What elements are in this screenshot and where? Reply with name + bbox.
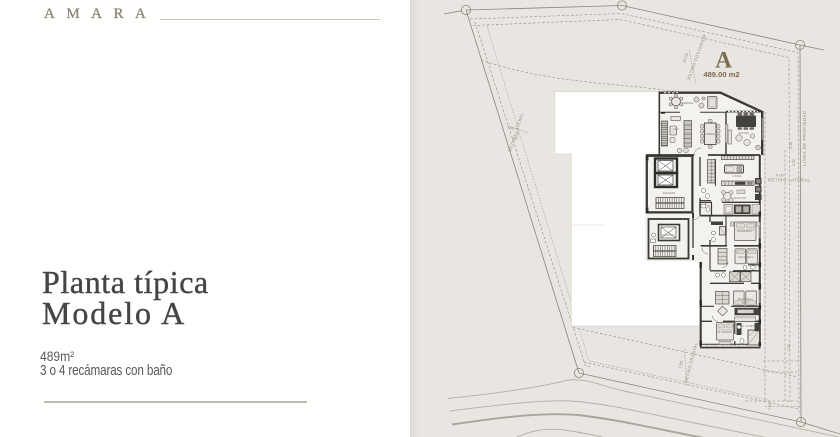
svg-text:ESTUDIO: ESTUDIO: [739, 133, 749, 135]
svg-text:2.50: 2.50: [792, 159, 796, 166]
svg-text:COCINA: COCINA: [733, 175, 742, 178]
svg-text:LINEA DE PROPIEDAD: LINEA DE PROPIEDAD: [802, 111, 807, 166]
svg-text:VESTIBULO: VESTIBULO: [662, 235, 675, 237]
svg-text:RECAMARA 3: RECAMARA 3: [738, 298, 754, 301]
svg-text:ALC. MASTER: ALC. MASTER: [716, 331, 732, 334]
svg-text:DESAYUNO: DESAYUNO: [734, 197, 747, 200]
svg-text:W. CLOSET: W. CLOSET: [742, 326, 755, 328]
svg-text:COMEDOR: COMEDOR: [704, 134, 716, 136]
svg-text:2.50: 2.50: [787, 344, 791, 351]
svg-text:RECAMARA 2: RECAMARA 2: [739, 256, 755, 259]
svg-text:SALA: SALA: [673, 128, 679, 131]
svg-text:ESCALERA: ESCALERA: [663, 192, 676, 195]
svg-text:A: A: [715, 48, 732, 73]
svg-text:489.00 m2: 489.00 m2: [703, 70, 739, 79]
svg-text:4.00: 4.00: [776, 173, 785, 178]
svg-text:TERRAZA: TERRAZA: [683, 102, 694, 105]
svg-text:RETIRO LATERAL: RETIRO LATERAL: [768, 178, 810, 183]
svg-text:RECAMARA 1: RECAMARA 1: [738, 230, 754, 233]
svg-text:-1.50: -1.50: [789, 142, 793, 150]
